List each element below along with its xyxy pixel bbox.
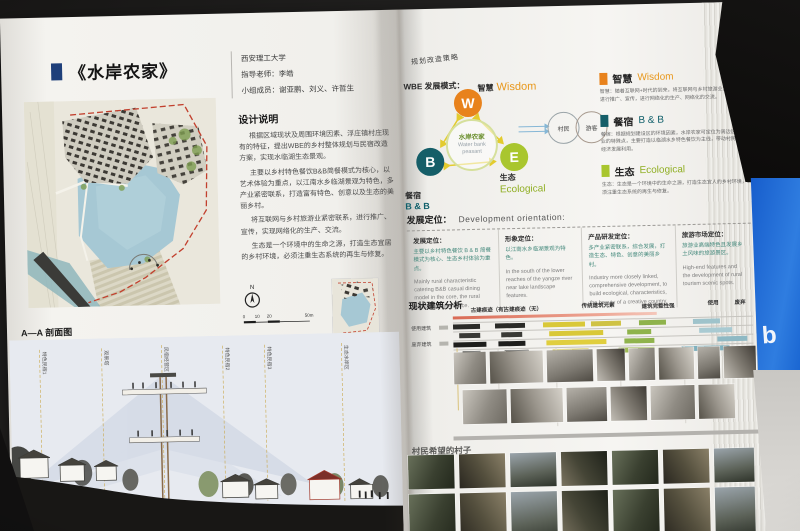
development-heading-zh: 发展定位： bbox=[406, 212, 451, 226]
photo-thumbnail bbox=[562, 490, 609, 531]
open-book: 《水岸农家》 西安理工大学 指导老师：李皓 小组成员：谢亚鹏、刘义、许哲生 bbox=[0, 1, 768, 531]
section-annotation: 生态水岸区 bbox=[342, 345, 350, 370]
legend-square-teal bbox=[600, 115, 608, 127]
photo-thumbnail bbox=[597, 349, 626, 382]
design-notes-heading: 设计说明 bbox=[238, 108, 392, 126]
bnb-label-en: B & B bbox=[405, 201, 430, 213]
node-letter: B bbox=[425, 154, 435, 170]
section-annotation: 民宿经营区 bbox=[162, 347, 170, 372]
legend-en: B & B bbox=[638, 114, 664, 126]
svg-text:50m: 50m bbox=[305, 313, 314, 318]
development-heading-en: Development orientation: bbox=[458, 212, 565, 224]
inset-map-thumbnail bbox=[332, 278, 379, 337]
chart-header: 古建痕迹（无） bbox=[504, 304, 543, 313]
photo-thumbnail bbox=[489, 350, 543, 383]
chart-bar-segment bbox=[699, 327, 732, 332]
photo-thumbnail bbox=[698, 346, 721, 378]
eco-label: 生态 Ecological bbox=[500, 172, 546, 196]
dev-column: 旅游市场定位： 旅游业高端特色且发展乡土风味的旅游景区。 High-end fe… bbox=[675, 224, 753, 307]
chart-bar-segment bbox=[453, 324, 480, 329]
page-title: 《水岸农家》 bbox=[69, 57, 178, 84]
svg-text:0: 0 bbox=[243, 314, 246, 319]
dev-col-title: 形象定位： bbox=[505, 232, 575, 244]
bnb-label: 餐宿 B & B bbox=[405, 191, 430, 214]
chart-bar-segment bbox=[453, 342, 486, 347]
wisdom-label: 智慧Wisdom bbox=[477, 80, 536, 93]
dev-col-en: High-end features and the development of… bbox=[682, 262, 746, 288]
photo-thumbnail bbox=[664, 488, 711, 531]
photo-thumbnail bbox=[566, 387, 607, 422]
chart-header: 建筑完整性强 bbox=[642, 301, 675, 310]
legend-item-eco: 生态 Ecological 生态：生态是一个环境中的生命之源，打造生态宜人的乡村… bbox=[601, 160, 754, 197]
chart-bar-segment bbox=[543, 321, 585, 326]
book-photo: 《水岸农家》 西安理工大学 指导老师：李皓 小组成员：谢亚鹏、刘义、许哲生 bbox=[0, 0, 800, 531]
photo-thumbnail bbox=[663, 449, 710, 484]
site-plan-map bbox=[24, 98, 221, 308]
chart-sub-tag bbox=[439, 326, 448, 330]
photo-thumbnail bbox=[610, 386, 647, 421]
blue-book-letter: b bbox=[761, 322, 778, 351]
design-notes-paragraph: 将互联网与乡村旅游业紧密联系，进行推广、宣传，实现网络化的生产、交流。 bbox=[240, 212, 394, 238]
dev-column: 形象定位： 以江南水乡临湖景观为特色。 In the south of the … bbox=[498, 228, 583, 312]
dev-col-zh: 主要以乡村特色餐饮 B & B 简餐模式为核心、生态乡村体验为重点。 bbox=[413, 247, 492, 274]
node-letter: W bbox=[461, 95, 475, 111]
section-drawing: 特色民宿1 观景塔 民宿经营区 特色民宿2 特色民宿3 生态水岸区 bbox=[9, 332, 404, 531]
wisdom-label-zh: 智慧 bbox=[478, 83, 494, 92]
chart-bar-segment bbox=[624, 338, 654, 343]
chart-bar-segment bbox=[501, 332, 522, 337]
center-name-en: peasant bbox=[462, 149, 482, 156]
chart-bar-segment bbox=[498, 341, 525, 346]
chart-bar-segment bbox=[495, 323, 525, 328]
legend-square-green bbox=[601, 165, 609, 177]
photo-thumbnail bbox=[698, 384, 735, 419]
dev-col-title: 旅游市场定位： bbox=[682, 228, 745, 239]
photo-thumbnail bbox=[724, 346, 756, 379]
design-notes: 设计说明 根据区域现状及周围环境因素、浮庄镇村庄现有的特征，提出WBE的乡村整体… bbox=[238, 108, 395, 267]
photo-thumbnail bbox=[547, 349, 593, 382]
photo-thumbnail bbox=[510, 452, 557, 487]
credits-block: 西安理工大学 指导老师：李皓 小组成员：谢亚鹏、刘义、许哲生 bbox=[231, 49, 355, 99]
chart-bar-segment bbox=[693, 318, 720, 323]
legend-zh: 智慧 bbox=[612, 70, 632, 85]
left-page-title-row: 《水岸农家》 bbox=[51, 57, 178, 85]
photo-thumbnail bbox=[510, 388, 563, 423]
title-bullet-square bbox=[51, 63, 62, 80]
chart-bar-segment bbox=[627, 329, 651, 334]
section-drawing-title: A—A 剖面图 bbox=[21, 325, 72, 339]
chart-row-label: 使用建筑 bbox=[411, 325, 431, 332]
dev-col-title: 产品研发定位： bbox=[588, 230, 669, 242]
section-annotation: 特色民宿1 bbox=[40, 352, 48, 375]
development-orientation-section: 发展定位： Development orientation: 发展定位： 主要以… bbox=[406, 206, 752, 314]
svg-text:10: 10 bbox=[255, 314, 261, 319]
chart-bar-segment bbox=[717, 336, 747, 341]
dev-column: 产品研发定位： 多产业紧密联系，综合发展，打造生态、特色、创意的美丽乡村。 In… bbox=[581, 225, 677, 309]
photo-thumbnail bbox=[409, 493, 456, 531]
legend-text: 餐宿：根据规划建设区的环境因素，水岸农家可定位为周边区域旅游业的特殊点，主要打造… bbox=[601, 128, 753, 155]
dev-col-zh: 多产业紧密联系，综合发展，打造生态、特色、创意的美丽乡村。 bbox=[588, 243, 669, 270]
photo-thumbnail bbox=[612, 450, 659, 485]
dev-col-zh: 旅游业高端特色且发展乡土风味的旅游景区。 bbox=[682, 241, 746, 259]
dev-col-zh: 以江南水乡临湖景观为特色。 bbox=[505, 245, 576, 263]
node-letter: E bbox=[509, 149, 519, 165]
design-notes-paragraph: 根据区域现状及周围环境因素、浮庄镇村庄现有的特征，提出WBE的乡村整体规划与民宿… bbox=[239, 128, 394, 165]
photo-thumbnail bbox=[650, 385, 695, 420]
photo-thumbnail bbox=[658, 347, 694, 380]
chart-bar-segment bbox=[459, 333, 480, 338]
north-arrow: N bbox=[242, 285, 263, 311]
photo-thumbnail bbox=[613, 489, 660, 531]
dev-col-en: In the south of the lower reaches of the… bbox=[506, 266, 577, 301]
photo-thumbnail bbox=[454, 352, 486, 385]
chart-header: 使用 bbox=[707, 298, 718, 306]
credit-members: 小组成员：谢亚鹏、刘义、许哲生 bbox=[241, 80, 354, 98]
bnb-label-zh: 餐宿 bbox=[405, 191, 430, 202]
photo-thumbnail bbox=[408, 454, 455, 489]
photo-thumbnail bbox=[714, 448, 755, 483]
chart-bar-segment bbox=[546, 339, 606, 345]
chart-sub-tag bbox=[439, 342, 448, 346]
photo-thumbnail bbox=[715, 487, 756, 531]
legend-zh: 生态 bbox=[614, 163, 634, 178]
chart-bar-segment bbox=[591, 321, 621, 326]
hope-photo-grid bbox=[408, 447, 766, 531]
section-annotation: 观景塔 bbox=[102, 350, 109, 365]
photo-thumbnail bbox=[511, 491, 558, 531]
legend-text: 生态：生态是一个环境中的生命之源，打造生态宜人的乡村环境，必须注重生态系统的再生… bbox=[602, 178, 754, 197]
photo-thumbnail bbox=[462, 389, 507, 424]
scale-bar: 0 10 20 50m bbox=[243, 311, 327, 327]
section-annotation: 特色民宿2 bbox=[223, 348, 231, 371]
legend-en: Ecological bbox=[639, 164, 685, 176]
svg-text:20: 20 bbox=[267, 314, 273, 319]
chart-row-label: 废弃建筑 bbox=[411, 341, 431, 348]
wisdom-label-en: Wisdom bbox=[496, 80, 536, 93]
photo-thumbnail bbox=[561, 451, 608, 486]
section-annotation: 特色民宿3 bbox=[265, 347, 273, 370]
legend-square-orange bbox=[599, 72, 607, 84]
photo-thumbnail bbox=[459, 453, 506, 488]
photo-thumbnail bbox=[628, 348, 655, 381]
legend-zh: 餐宿 bbox=[613, 113, 633, 128]
compass-icon bbox=[243, 291, 261, 309]
chart-bar-segment bbox=[549, 330, 603, 336]
chart-header: 传统建筑元素 bbox=[581, 301, 614, 310]
design-notes-paragraph: 生态是一个环境中的生命之源，打造生态宜居的乡村环境，必须注重生态系统的再生与修复… bbox=[241, 237, 395, 263]
design-notes-paragraph: 主要以乡村特色餐饮B&B简餐模式为核心，以艺术体验为重点，以江南水乡临湖景观为特… bbox=[239, 164, 394, 212]
analysis-photo-grid bbox=[454, 346, 758, 425]
chart-header: 废弃 bbox=[734, 298, 745, 306]
eco-label-en: Ecological bbox=[500, 183, 546, 197]
dev-col-title: 发展定位： bbox=[413, 234, 492, 246]
legend-en: Wisdom bbox=[637, 71, 673, 83]
chart-bar-segment bbox=[639, 320, 666, 325]
photo-thumbnail bbox=[460, 492, 507, 531]
